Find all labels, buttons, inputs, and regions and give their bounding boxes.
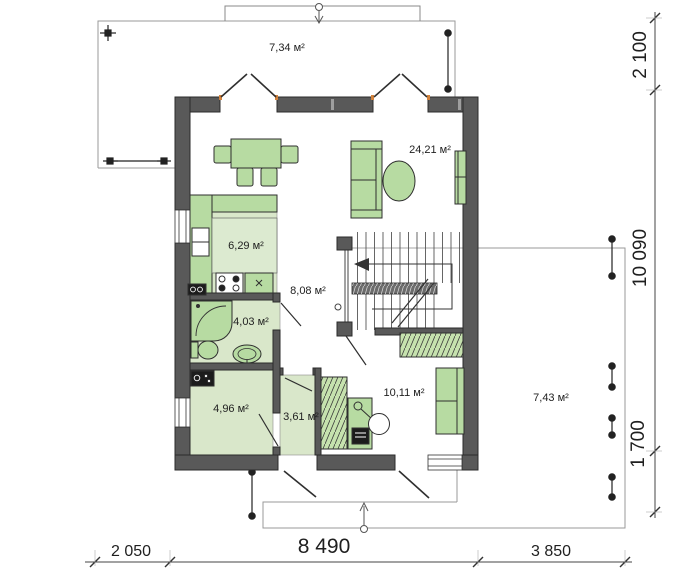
label-cabinet: 10,11 м² <box>384 387 425 399</box>
stair-handrail-hatch <box>352 283 437 294</box>
boiler <box>191 371 214 386</box>
dining-chair <box>214 146 231 163</box>
wall-bottom-corner <box>462 455 478 470</box>
window-cabinet <box>428 455 462 470</box>
wall-left-1 <box>175 97 190 210</box>
dining-chair <box>261 168 277 186</box>
label-living: 24,21 м² <box>409 144 451 156</box>
stove <box>216 273 243 293</box>
fridge <box>192 228 209 256</box>
dim-bottom-center: 8 490 <box>298 535 351 558</box>
floor-plan-canvas: 7,34 м² 24,21 м² 6,29 м² 8,08 м² 4,03 м²… <box>0 0 700 575</box>
dim-right-middle: 10 090 <box>630 229 651 287</box>
label-bathroom: 4,03 м² <box>233 316 269 328</box>
wall-v1-b <box>273 330 280 413</box>
jamb-3 <box>371 95 374 100</box>
wardrobe-horizontal-hatch <box>400 333 463 357</box>
washbasin <box>233 345 261 363</box>
dining-chair <box>237 168 253 186</box>
wall-bottom-left <box>175 455 278 470</box>
coffee-table <box>383 161 415 201</box>
dining-chair <box>281 146 298 163</box>
kitchen-sink <box>245 273 273 293</box>
stair-newel-bottom <box>337 322 352 336</box>
computer <box>352 428 369 444</box>
stair-newel-top <box>337 237 352 250</box>
wall-v1-c <box>273 447 280 455</box>
label-kitchen: 6,29 м² <box>228 240 264 252</box>
washing-machine <box>188 284 206 295</box>
toilet <box>191 341 218 359</box>
wall-left-2 <box>175 243 190 398</box>
wall-bottom-mid <box>317 455 395 470</box>
window-tick-top-mid <box>331 99 334 110</box>
wardrobe-vertical-hatch <box>321 377 347 449</box>
label-vestibule: 3,61 м² <box>283 411 319 423</box>
window-kitchen <box>175 210 190 243</box>
desk-chair <box>369 414 390 435</box>
stair-upper-flight <box>352 232 463 283</box>
stair-lower-flight <box>352 294 437 330</box>
wall-v1-a <box>273 293 280 302</box>
label-hall: 8,08 м² <box>290 285 326 297</box>
dim-right-top: 2 100 <box>630 31 651 79</box>
label-terrace-top: 7,34 м² <box>269 42 305 54</box>
desk-lamp <box>354 402 362 410</box>
background <box>0 0 700 575</box>
dining-table <box>231 139 281 168</box>
dim-bottom-right: 3 850 <box>531 543 571 560</box>
wall-bath-utility <box>190 363 277 370</box>
dim-right-bottom: 1 700 <box>628 420 649 468</box>
jamb-4 <box>427 95 430 100</box>
stair-newel-circle <box>335 304 341 310</box>
label-utility: 4,96 м² <box>213 403 249 415</box>
wall-top-mid <box>277 97 373 112</box>
window-utility <box>175 398 190 427</box>
window-tick-top-right <box>458 99 461 110</box>
label-terrace-right: 7,43 м² <box>533 392 569 404</box>
cabinet-sofa <box>436 368 464 434</box>
dim-bottom-left: 2 050 <box>111 543 151 560</box>
